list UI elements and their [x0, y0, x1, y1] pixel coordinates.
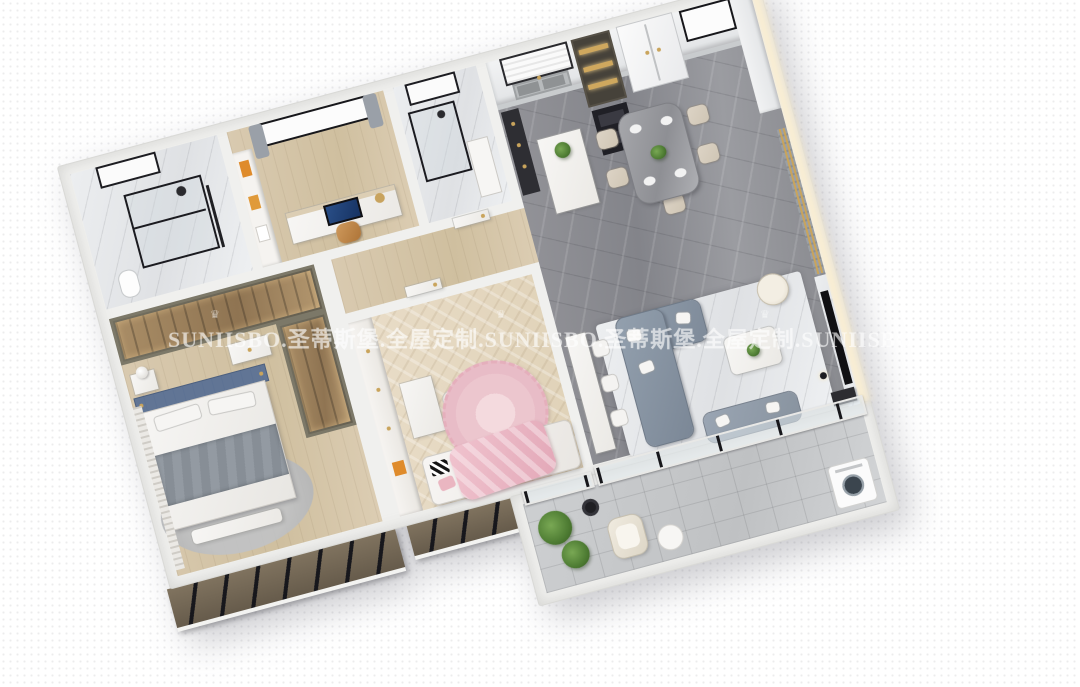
dining-chair — [696, 142, 720, 165]
knob — [386, 426, 391, 431]
sink-basin — [517, 81, 541, 96]
bottle — [511, 121, 516, 126]
plate — [629, 123, 643, 135]
books-white — [256, 225, 269, 241]
sofa-pillow — [676, 312, 690, 323]
bed-pillow — [208, 392, 256, 415]
bed-pillow — [154, 404, 202, 432]
door-handle — [480, 213, 485, 218]
curtain-right — [362, 93, 384, 129]
bottle — [522, 164, 527, 169]
fridge-handle — [656, 47, 661, 52]
sink-basin — [542, 74, 566, 89]
knob — [366, 349, 371, 354]
kids-desk — [400, 376, 445, 438]
gray-throw — [154, 424, 289, 507]
kitchen-island — [537, 129, 599, 214]
round-table — [656, 523, 685, 552]
lit-shelf — [588, 78, 618, 91]
decor — [247, 347, 252, 352]
bottle — [516, 143, 521, 148]
floorplan-render: SUNIISBO.圣蒂斯堡.全屋定制.SUNIISBO.圣蒂斯堡.全屋定制.SU… — [0, 0, 1080, 687]
washer-door — [840, 472, 867, 499]
plate — [660, 115, 674, 127]
apartment-plan — [58, 0, 902, 687]
side-table — [580, 497, 601, 518]
washing-machine — [828, 458, 878, 509]
plate — [643, 175, 657, 187]
sofa-pillow — [626, 329, 641, 342]
gold-stud — [259, 371, 264, 376]
door-handle — [433, 282, 438, 287]
chair-cushion — [614, 522, 641, 551]
knob — [376, 387, 381, 392]
washer-panel — [835, 463, 863, 473]
lounge-chair — [606, 513, 649, 560]
loveseat-pillow — [766, 401, 780, 413]
lit-shelf — [578, 43, 608, 56]
books-orange — [248, 194, 261, 210]
island-plant — [553, 140, 573, 160]
book-spines — [392, 460, 407, 477]
coffee-table-plant — [745, 342, 761, 358]
lit-shelf — [583, 60, 613, 73]
books-orange — [239, 160, 253, 178]
fridge-handle — [645, 50, 650, 55]
centerpiece — [649, 143, 668, 161]
dresser — [228, 335, 272, 365]
toilet — [117, 269, 141, 299]
vanity — [467, 137, 501, 196]
dining-chair — [606, 166, 630, 189]
plate — [674, 167, 688, 179]
dining-chair — [686, 103, 710, 126]
